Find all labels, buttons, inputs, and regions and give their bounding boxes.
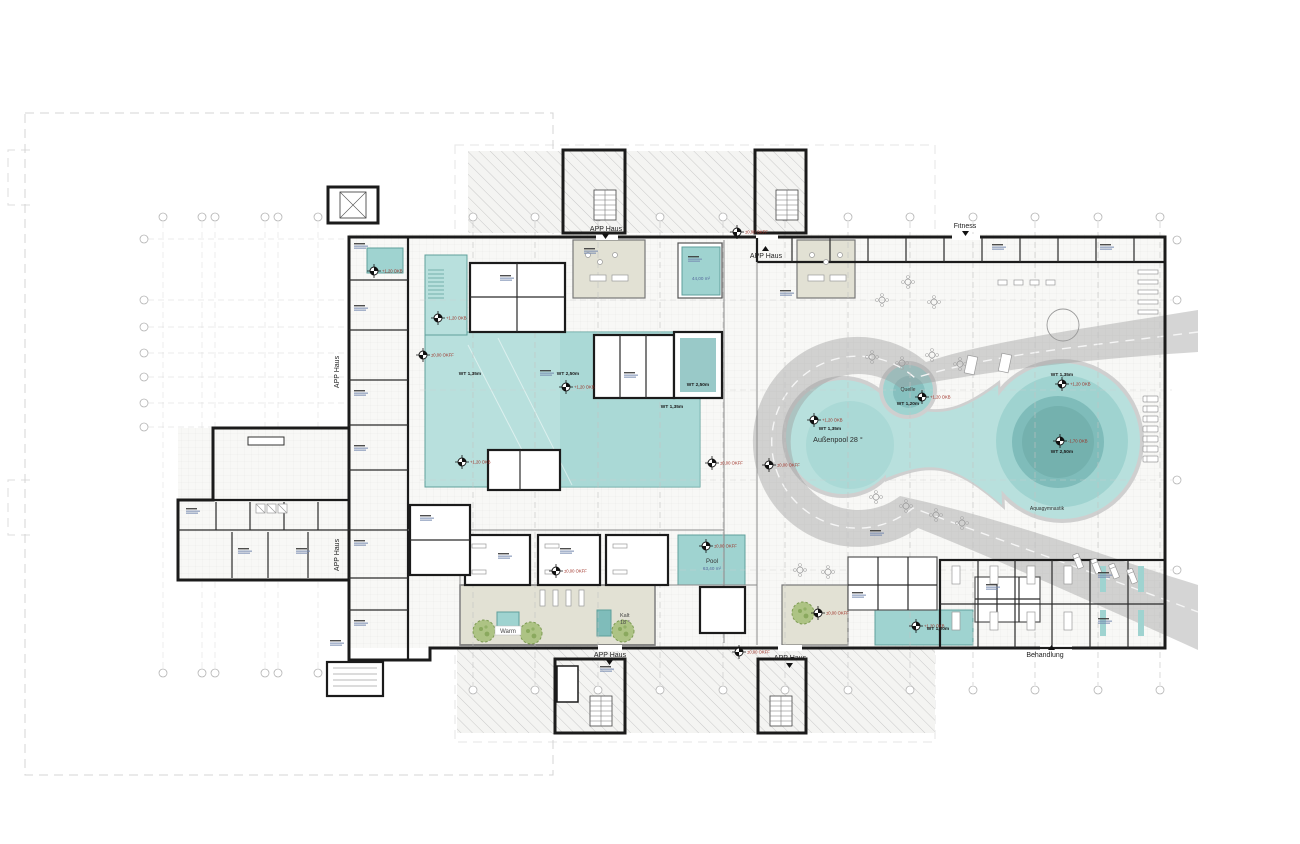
small-pool-area-label: 44,00 m² — [692, 276, 711, 281]
depth-label: WT 1,35m — [459, 371, 481, 377]
lounge-zone-right — [797, 240, 855, 298]
level-text: -1,70 OKB — [1068, 439, 1088, 444]
app-haus-label-vertical: APP Haus — [334, 538, 341, 571]
depth-label: WT 1,35m — [1051, 372, 1073, 378]
kalt-temp-label: 18 ° — [620, 620, 630, 626]
level-text: +1,20 OKB — [446, 316, 467, 321]
app-haus-label: APP Haus — [750, 253, 783, 260]
level-text: +1,20 OKB — [574, 385, 595, 390]
depth-label: WT 2,50m — [1051, 449, 1073, 455]
warm-label: Warm — [500, 629, 516, 635]
aquagym-label: Aquagymnastik — [1030, 506, 1065, 512]
level-text: ±0,00 OKFF — [745, 230, 768, 235]
cold-plunge-pool — [597, 610, 611, 636]
tree-icon — [792, 602, 814, 624]
app-haus-label: APP Haus — [590, 226, 623, 233]
quelle-label: Quelle — [901, 387, 916, 393]
level-text: +1,20 OKB — [382, 269, 403, 274]
behandlung-label: Behandlung — [1026, 652, 1063, 659]
level-text: ±0,00 OKFF — [720, 461, 743, 466]
tree-icon — [473, 620, 495, 642]
lower-room-block — [488, 450, 560, 490]
top-small-pool-water — [682, 247, 720, 295]
sauna-room-1 — [465, 535, 530, 585]
level-text: +1,20 OKB — [822, 418, 843, 423]
pool-stair-strip — [425, 255, 467, 335]
level-text: ±0,00 OKFF — [564, 569, 587, 574]
aussenpool-label: Außenpool 28 ° — [813, 435, 863, 444]
kalt-label: Kalt — [620, 613, 630, 619]
roof-hatch-bottom — [457, 649, 935, 733]
depth-label: WT 1,20m — [897, 401, 919, 407]
level-text: +1,20 OKB — [930, 395, 951, 400]
sun-loungers-right — [1143, 396, 1158, 462]
pool-label: Pool — [706, 559, 718, 565]
fitness-label: Fitness — [954, 223, 977, 230]
wc-block — [594, 335, 674, 398]
warm-plunge-pool — [497, 612, 519, 628]
sauna-room-2 — [538, 535, 600, 585]
locker-squares — [256, 504, 287, 513]
app-haus-label-vertical: APP Haus — [334, 355, 341, 388]
lounge-zone-top — [573, 240, 645, 298]
sauna-room-3 — [606, 535, 668, 585]
level-text: ±0,00 OKFF — [777, 463, 800, 468]
level-text: +1,20 OKB — [1070, 382, 1091, 387]
left-lobe-shading — [806, 401, 894, 489]
pool-area-label: 63,40 m² — [703, 566, 722, 571]
level-text: +1,20 OKB — [470, 460, 491, 465]
depth-label: WT 1,20m — [927, 626, 949, 632]
depth-label: WT 1,35m — [819, 426, 841, 432]
floor-plan-canvas: +1,20 OKB +1,20 OKB +1,20 OKB +1,20 OKB … — [0, 0, 1300, 844]
app-haus-label: APP Haus — [594, 652, 627, 659]
mid-right-rooms — [848, 557, 937, 610]
level-text: ±0,00 OKFF — [431, 353, 454, 358]
reception-desk — [248, 437, 284, 445]
se-room-block — [700, 587, 745, 633]
level-text: ±0,00 OKFF — [714, 544, 737, 549]
depth-label: WT 2,50m — [687, 382, 709, 388]
depth-label: WT 1,35m — [661, 404, 683, 410]
depth-label: WT 2,50m — [557, 371, 579, 377]
level-text: ±0,00 OKFF — [826, 611, 849, 616]
app-haus-label: APP Haus — [774, 655, 807, 662]
level-text: ±0,00 OKFF — [747, 650, 770, 655]
tree-icon — [520, 622, 542, 644]
